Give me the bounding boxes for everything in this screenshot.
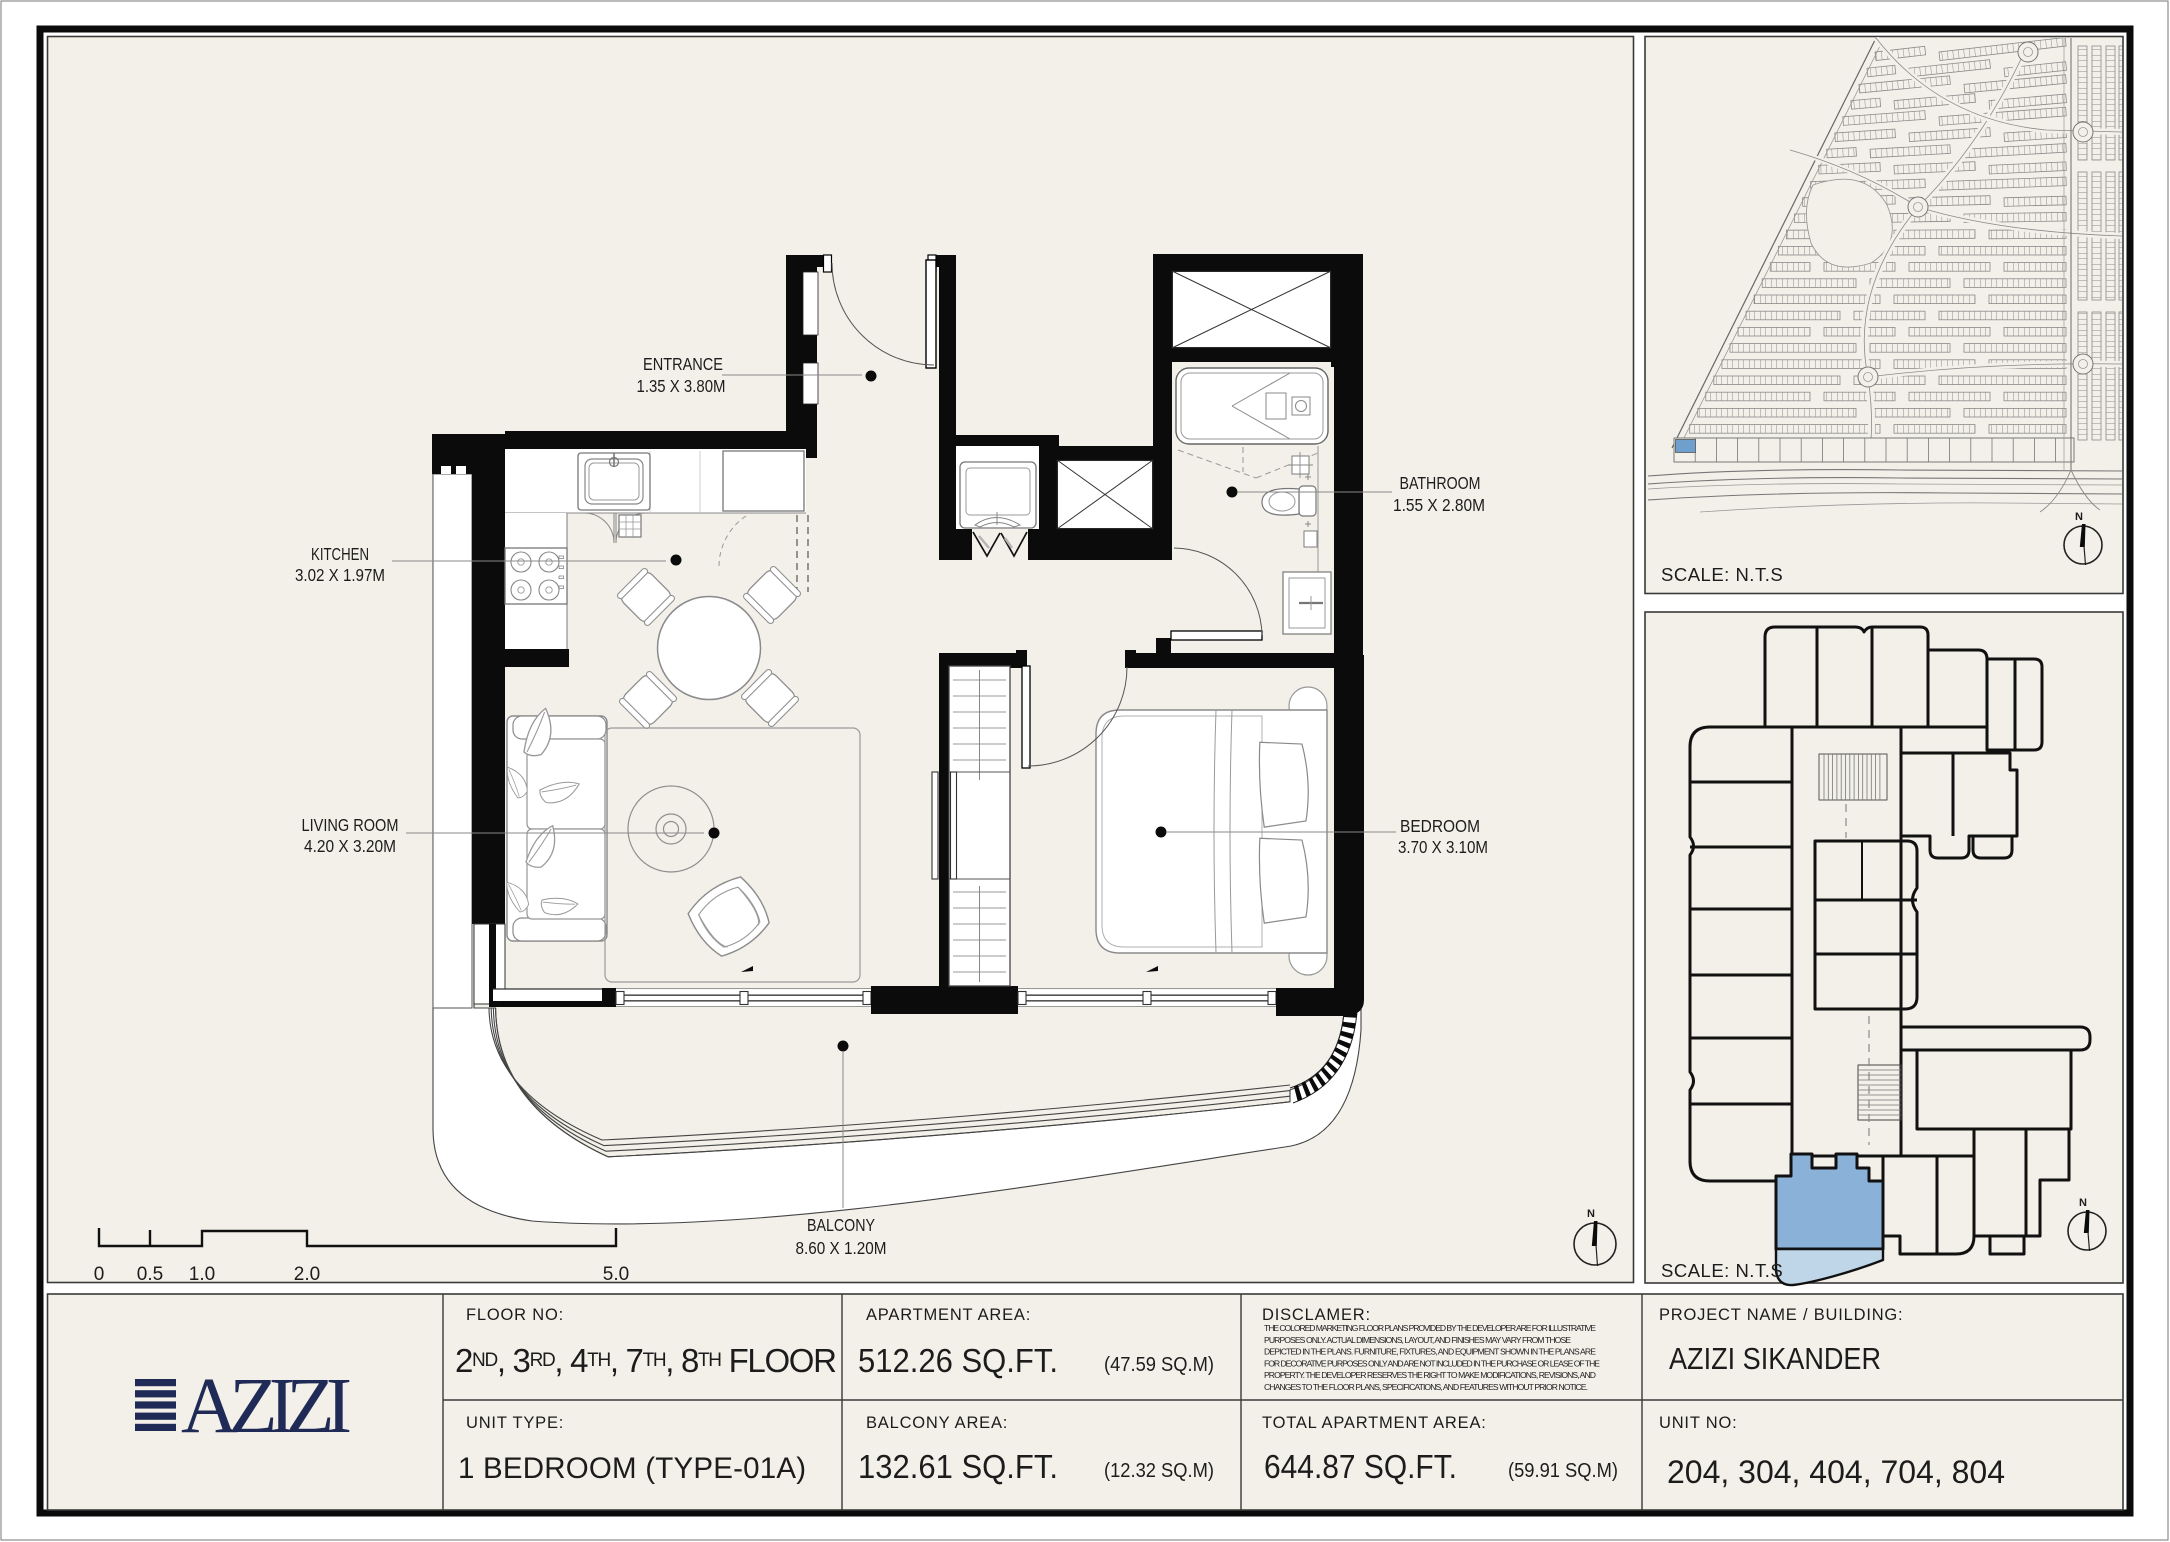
svg-text:THE COLORED MARKETING FLOOR PL: THE COLORED MARKETING FLOOR PLANS PROVID… <box>1264 1323 1596 1333</box>
svg-text:FLOOR NO:: FLOOR NO: <box>466 1306 564 1324</box>
svg-text:1.0: 1.0 <box>189 1264 215 1285</box>
svg-text:BALCONY: BALCONY <box>807 1215 875 1235</box>
svg-text:3.70 X 3.10M: 3.70 X 3.10M <box>1398 837 1488 857</box>
svg-text:FOR DECORATIVE PURPOSES ONLY A: FOR DECORATIVE PURPOSES ONLY AND ARE NOT… <box>1264 1358 1600 1368</box>
svg-text:1.55 X 2.80M: 1.55 X 2.80M <box>1393 495 1485 515</box>
svg-text:8.60 X 1.20M: 8.60 X 1.20M <box>796 1238 887 1258</box>
svg-text:DEPICTED IN THE PLANS. FURNITU: DEPICTED IN THE PLANS. FURNITURE, FIXTUR… <box>1264 1347 1596 1357</box>
svg-text:3.02 X 1.97M: 3.02 X 1.97M <box>295 565 385 585</box>
svg-text:BEDROOM: BEDROOM <box>1400 816 1480 836</box>
svg-text:PROJECT NAME / BUILDING:: PROJECT NAME / BUILDING: <box>1659 1306 1903 1324</box>
svg-text:5.0: 5.0 <box>603 1264 629 1285</box>
svg-text:(47.59 SQ.M): (47.59 SQ.M) <box>1104 1353 1214 1376</box>
svg-text:0: 0 <box>94 1264 105 1285</box>
svg-text:UNIT TYPE:: UNIT TYPE: <box>466 1414 564 1432</box>
svg-text:644.87 SQ.FT.: 644.87 SQ.FT. <box>1264 1448 1457 1485</box>
svg-text:BALCONY AREA:: BALCONY AREA: <box>866 1414 1008 1432</box>
svg-text:DISCLAMER:: DISCLAMER: <box>1262 1306 1371 1324</box>
svg-text:TOTAL APARTMENT AREA:: TOTAL APARTMENT AREA: <box>1262 1414 1487 1432</box>
svg-text:204, 304, 404, 704, 804: 204, 304, 404, 704, 804 <box>1667 1454 2005 1490</box>
svg-text:132.61 SQ.FT.: 132.61 SQ.FT. <box>858 1448 1058 1485</box>
svg-text:0.5: 0.5 <box>137 1264 163 1285</box>
svg-text:AZIZI SIKANDER: AZIZI SIKANDER <box>1669 1341 1881 1376</box>
svg-text:N: N <box>2079 1197 2087 1209</box>
svg-text:ENTRANCE: ENTRANCE <box>643 354 723 374</box>
svg-text:LIVING ROOM: LIVING ROOM <box>302 815 399 835</box>
svg-text:(12.32 SQ.M): (12.32 SQ.M) <box>1104 1459 1214 1482</box>
svg-text:UNIT NO:: UNIT NO: <box>1659 1414 1738 1432</box>
svg-text:SCALE: N.T.S: SCALE: N.T.S <box>1661 1260 1783 1281</box>
svg-text:APARTMENT AREA:: APARTMENT AREA: <box>866 1306 1031 1324</box>
svg-text:SCALE: N.T.S: SCALE: N.T.S <box>1661 564 1783 585</box>
svg-text:BATHROOM: BATHROOM <box>1400 473 1481 493</box>
svg-text:CHANGES TO THE FLOOR PLANS, SP: CHANGES TO THE FLOOR PLANS, SPECIFICATIO… <box>1264 1382 1588 1392</box>
svg-text:N: N <box>1587 1208 1595 1220</box>
svg-text:PURPOSES ONLY. ACTUAL DIMENSIO: PURPOSES ONLY. ACTUAL DIMENSIONS, LAYOUT… <box>1264 1335 1571 1345</box>
svg-text:(59.91 SQ.M): (59.91 SQ.M) <box>1508 1459 1618 1482</box>
svg-text:PROPERTY. THE DEVELOPER RESERV: PROPERTY. THE DEVELOPER RESERVES THE RIG… <box>1264 1370 1596 1380</box>
svg-text:N: N <box>2075 511 2083 523</box>
svg-text:512.26 SQ.FT.: 512.26 SQ.FT. <box>858 1342 1058 1379</box>
svg-text:2.0: 2.0 <box>294 1264 320 1285</box>
svg-text:1.35 X 3.80M: 1.35 X 3.80M <box>637 376 726 396</box>
svg-text:AZIZI: AZIZI <box>181 1363 352 1450</box>
svg-text:4.20 X 3.20M: 4.20 X 3.20M <box>304 836 396 856</box>
svg-text:KITCHEN: KITCHEN <box>311 544 369 564</box>
svg-text:1 BEDROOM (TYPE-01A): 1 BEDROOM (TYPE-01A) <box>458 1452 806 1485</box>
